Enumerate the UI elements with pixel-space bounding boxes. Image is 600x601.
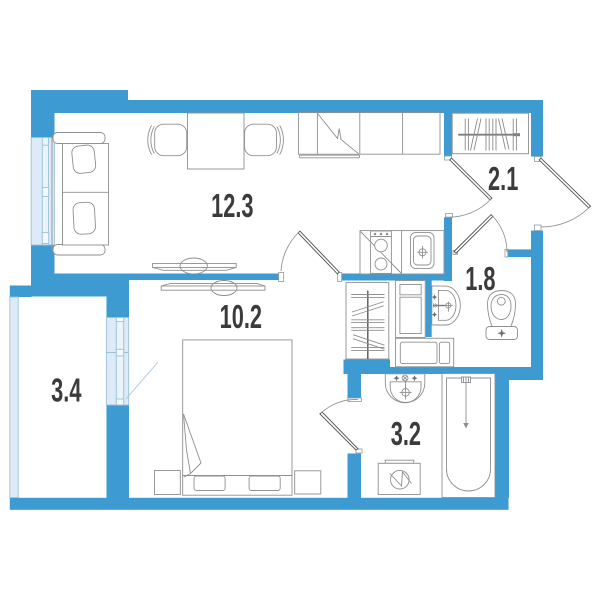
svg-text:1.8: 1.8	[465, 259, 495, 297]
svg-text:12.3: 12.3	[211, 186, 253, 224]
svg-text:3.2: 3.2	[391, 414, 421, 452]
svg-text:10.2: 10.2	[220, 297, 262, 335]
svg-text:2.1: 2.1	[488, 159, 518, 197]
svg-text:3.4: 3.4	[51, 370, 81, 408]
